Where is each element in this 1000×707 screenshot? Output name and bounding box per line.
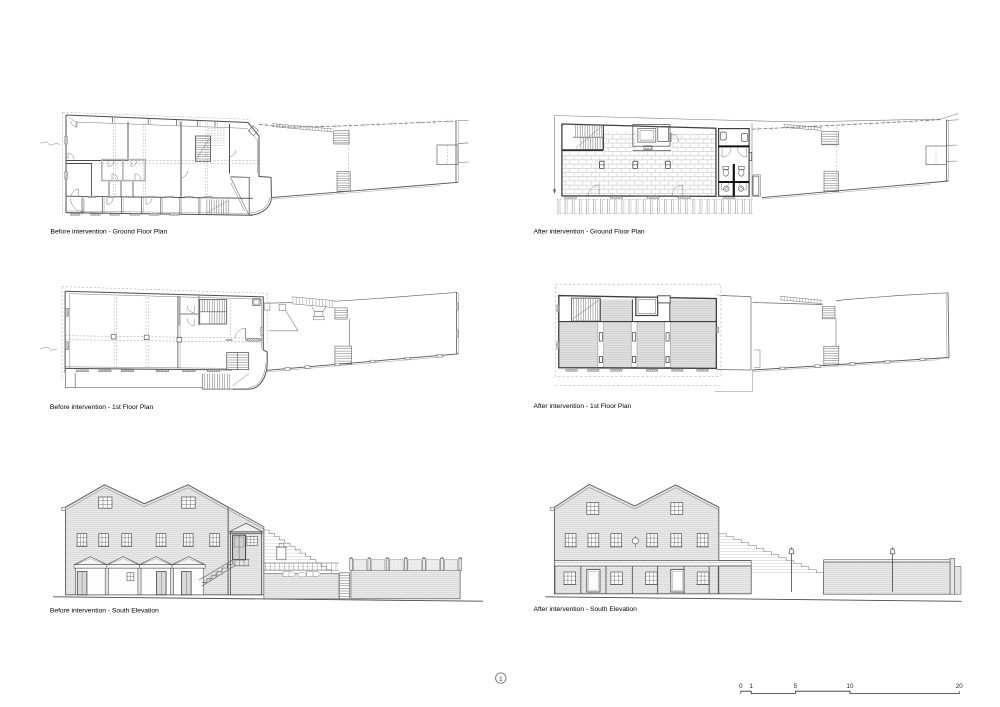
svg-text:Before intervention - Ground F: Before intervention - Ground Floor Plan [51,229,168,236]
svg-text:5: 5 [794,683,798,690]
svg-text:After intervention - 1st Floor: After intervention - 1st Floor Plan [534,403,632,410]
svg-text:After intervention - South Ele: After intervention - South Elevation [534,606,638,613]
svg-text:20: 20 [956,683,963,690]
svg-text:1: 1 [499,676,503,683]
svg-text:Before intervention - South El: Before intervention - South Elevation [50,608,159,615]
svg-text:Before intervention - 1st Floo: Before intervention - 1st Floor Plan [50,404,154,411]
svg-text:1: 1 [749,683,753,690]
svg-text:After intervention - Ground Fl: After intervention - Ground Floor Plan [534,229,645,236]
svg-text:10: 10 [847,683,854,690]
svg-text:0: 0 [739,683,743,690]
